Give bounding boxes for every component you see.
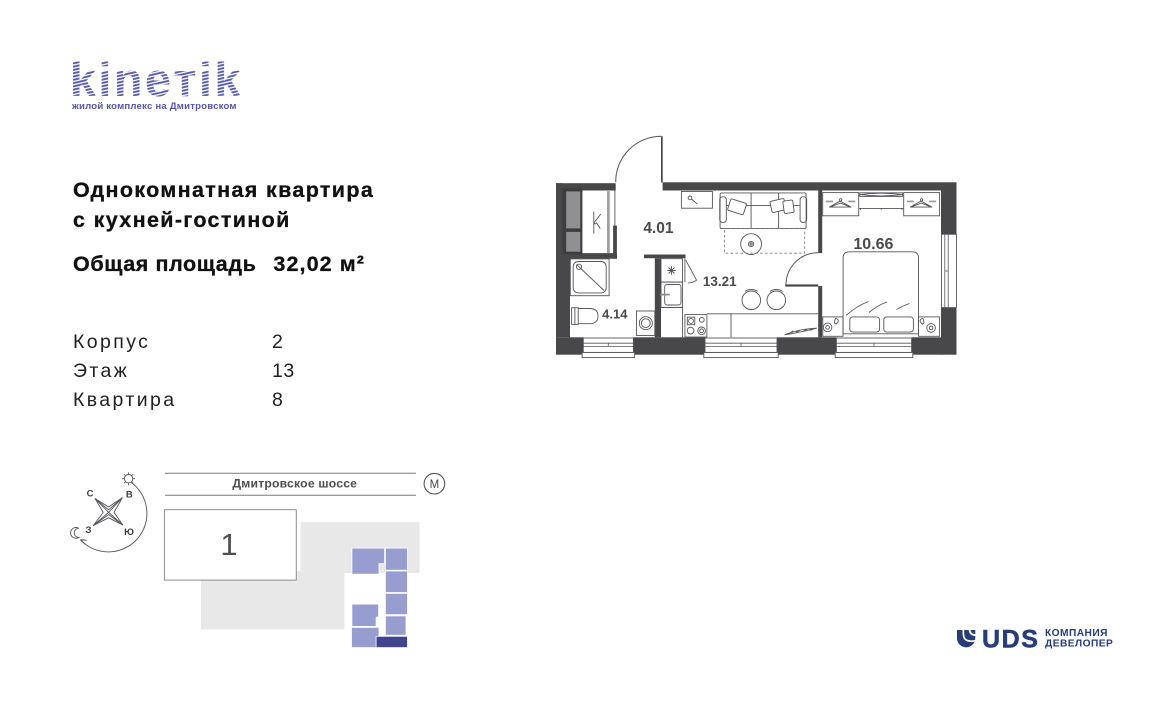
svg-text:Ю: Ю (124, 527, 134, 538)
svg-text:10.66: 10.66 (853, 236, 893, 253)
svg-text:С: С (87, 489, 94, 500)
svg-text:В: В (126, 489, 133, 500)
svg-text:ДЕВЕЛОПЕР: ДЕВЕЛОПЕР (1045, 639, 1113, 650)
svg-text:4.01: 4.01 (643, 220, 674, 237)
svg-text:4.14: 4.14 (602, 306, 628, 321)
svg-text:kineтik: kineтik (70, 53, 243, 106)
svg-text:1: 1 (220, 527, 237, 562)
svg-text:13.21: 13.21 (703, 274, 737, 289)
svg-text:Дмитровское шоссе: Дмитровское шоссе (232, 477, 357, 491)
svg-text:З: З (86, 525, 92, 536)
svg-text:UDS: UDS (982, 625, 1040, 653)
svg-text:М: М (430, 479, 440, 491)
